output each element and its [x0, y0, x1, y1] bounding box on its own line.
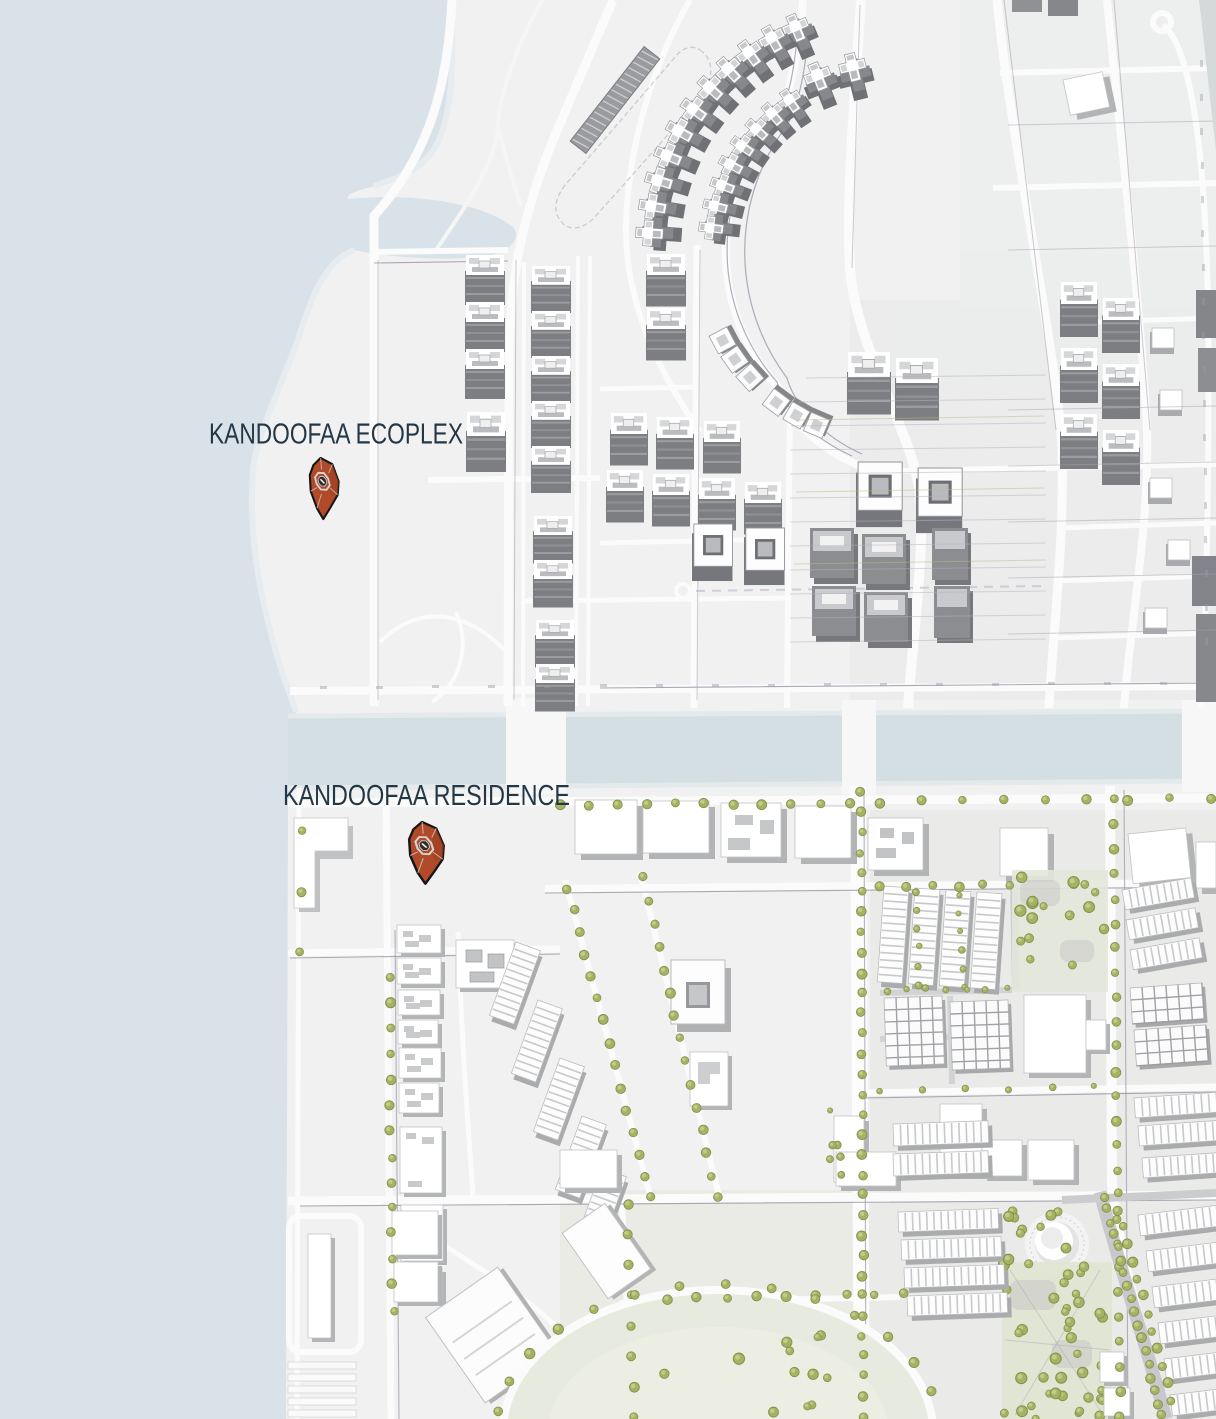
svg-text:KANDOOFAA RESIDENCE: KANDOOFAA RESIDENCE [283, 780, 570, 812]
svg-text:KANDOOFAA ECOPLEX: KANDOOFAA ECOPLEX [209, 419, 463, 451]
